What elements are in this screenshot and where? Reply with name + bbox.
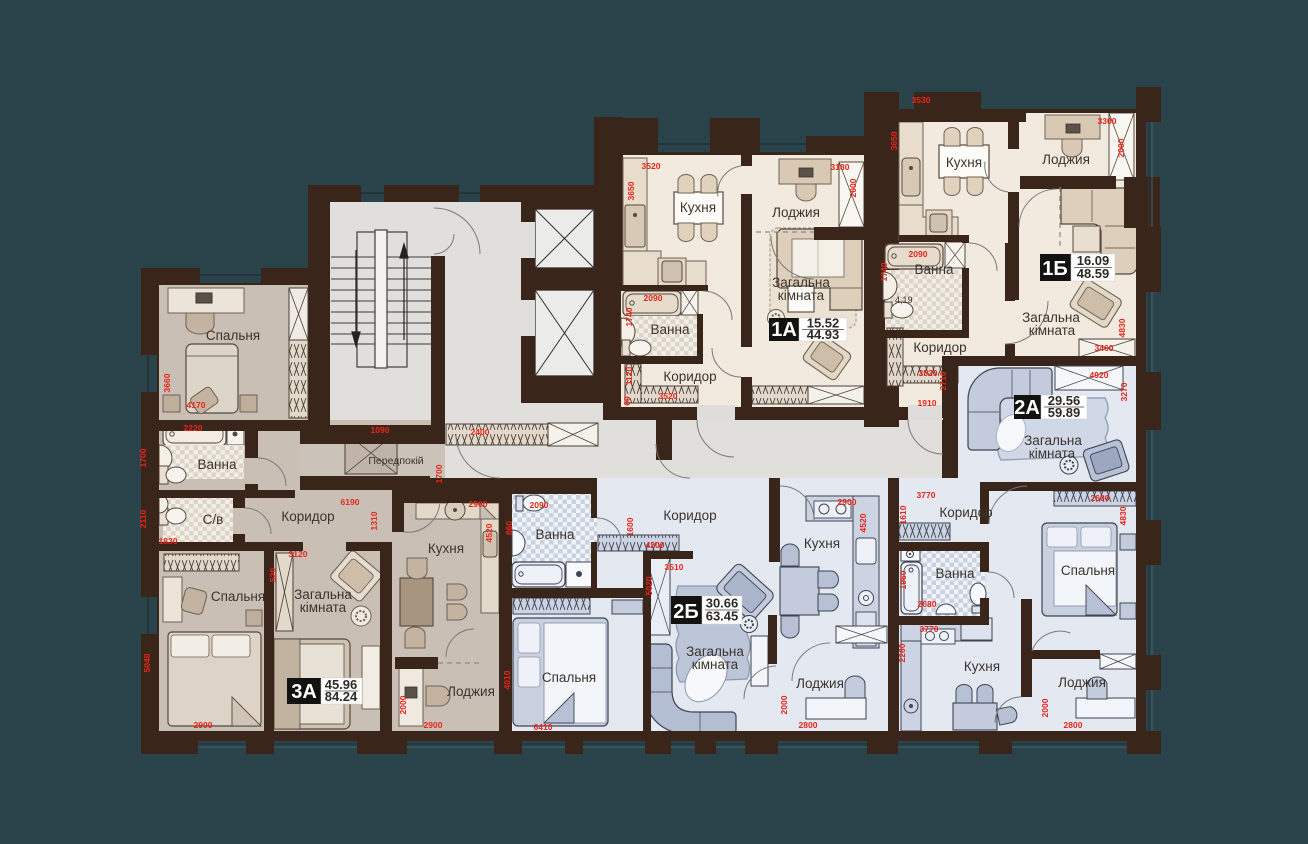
svg-text:3520: 3520: [659, 391, 678, 401]
svg-text:2090: 2090: [909, 249, 928, 259]
svg-text:59.89: 59.89: [1048, 405, 1081, 420]
svg-text:кімната: кімната: [1029, 323, 1076, 338]
svg-text:Кухня: Кухня: [428, 541, 464, 556]
svg-text:44.93: 44.93: [807, 327, 840, 342]
svg-text:4520: 4520: [858, 513, 868, 532]
svg-text:Кухня: Кухня: [804, 536, 840, 551]
svg-text:Лоджия: Лоджия: [796, 676, 844, 691]
svg-text:3270: 3270: [1119, 382, 1129, 401]
svg-text:1740: 1740: [624, 307, 634, 326]
svg-text:Кухня: Кухня: [964, 659, 1000, 674]
svg-text:Коридор: Коридор: [939, 505, 992, 520]
svg-text:2110: 2110: [138, 510, 148, 529]
svg-text:1700: 1700: [434, 464, 444, 483]
svg-text:860: 860: [504, 521, 514, 535]
svg-text:4200: 4200: [646, 540, 665, 550]
svg-text:63.45: 63.45: [706, 609, 739, 624]
svg-text:2900: 2900: [194, 720, 213, 730]
svg-text:60: 60: [622, 396, 632, 406]
svg-text:48.59: 48.59: [1077, 266, 1110, 281]
svg-text:2090: 2090: [530, 500, 549, 510]
svg-text:3300: 3300: [1098, 116, 1117, 126]
svg-text:2600: 2600: [1091, 493, 1110, 503]
svg-text:1700: 1700: [138, 448, 148, 467]
svg-text:2А: 2А: [1014, 397, 1040, 419]
svg-text:3650: 3650: [889, 131, 899, 150]
svg-text:2000: 2000: [1116, 138, 1126, 157]
svg-text:520: 520: [268, 568, 278, 582]
svg-text:2260: 2260: [897, 643, 907, 662]
svg-text:Ванна: Ванна: [651, 322, 690, 337]
svg-text:2000: 2000: [1040, 698, 1050, 717]
svg-text:2680: 2680: [918, 599, 937, 609]
svg-text:Кухня: Кухня: [946, 155, 982, 170]
svg-text:1600: 1600: [625, 517, 635, 536]
svg-text:Лоджия: Лоджия: [772, 205, 820, 220]
svg-text:2000: 2000: [398, 695, 408, 714]
svg-text:4520: 4520: [484, 523, 494, 542]
svg-text:3120: 3120: [289, 549, 308, 559]
svg-text:1740: 1740: [879, 262, 889, 281]
svg-text:1Б: 1Б: [1042, 258, 1068, 280]
svg-text:2400: 2400: [471, 427, 490, 437]
svg-text:1610: 1610: [898, 505, 908, 524]
svg-text:Ванна: Ванна: [536, 527, 575, 542]
svg-text:1120: 1120: [624, 367, 634, 386]
svg-text:3770: 3770: [920, 624, 939, 634]
svg-text:84.24: 84.24: [325, 689, 358, 704]
svg-text:Спальня: Спальня: [1061, 563, 1115, 578]
svg-text:4,19: 4,19: [895, 295, 913, 305]
svg-text:3650: 3650: [626, 181, 636, 200]
svg-text:Коридор: Коридор: [913, 340, 966, 355]
svg-text:5020: 5020: [644, 576, 654, 595]
svg-text:2710: 2710: [938, 371, 948, 390]
svg-text:Спальня: Спальня: [211, 589, 265, 604]
svg-text:кімната: кімната: [300, 600, 347, 615]
svg-text:1910: 1910: [918, 398, 937, 408]
svg-text:3А: 3А: [291, 681, 317, 703]
svg-text:Коридор: Коридор: [663, 508, 716, 523]
svg-text:Спальня: Спальня: [542, 670, 596, 685]
svg-text:2Б: 2Б: [673, 601, 699, 623]
svg-text:2800: 2800: [799, 720, 818, 730]
svg-text:Лоджия: Лоджия: [447, 684, 495, 699]
svg-text:кімната: кімната: [1029, 446, 1076, 461]
svg-text:Лоджия: Лоджия: [1042, 152, 1090, 167]
svg-text:3530: 3530: [912, 95, 931, 105]
svg-text:2900: 2900: [424, 720, 443, 730]
svg-text:Лоджия: Лоджия: [1058, 675, 1106, 690]
svg-text:2900: 2900: [469, 499, 488, 509]
svg-text:1А: 1А: [771, 319, 797, 341]
svg-text:1960: 1960: [898, 570, 908, 589]
svg-text:2220: 2220: [184, 423, 203, 433]
svg-text:3510: 3510: [665, 562, 684, 572]
svg-text:4010: 4010: [502, 670, 512, 689]
svg-text:1090: 1090: [371, 425, 390, 435]
svg-text:Спальня: Спальня: [206, 328, 260, 343]
svg-text:Передпокій: Передпокій: [368, 455, 423, 467]
svg-text:6410: 6410: [534, 722, 553, 732]
svg-text:3770: 3770: [917, 490, 936, 500]
svg-text:5040: 5040: [142, 653, 152, 672]
svg-text:2900: 2900: [838, 497, 857, 507]
svg-text:1830: 1830: [159, 536, 178, 546]
svg-text:2000: 2000: [848, 178, 858, 197]
svg-text:Коридор: Коридор: [281, 509, 334, 524]
svg-text:3520: 3520: [919, 368, 938, 378]
svg-text:1310: 1310: [369, 511, 379, 530]
svg-text:4170: 4170: [187, 400, 206, 410]
svg-text:Кухня: Кухня: [680, 200, 716, 215]
svg-text:4920: 4920: [1090, 370, 1109, 380]
svg-text:3660: 3660: [162, 373, 172, 392]
svg-text:2000: 2000: [779, 695, 789, 714]
svg-text:Ванна: Ванна: [915, 262, 954, 277]
svg-text:2090: 2090: [644, 293, 663, 303]
svg-text:кімната: кімната: [692, 657, 739, 672]
svg-text:3460: 3460: [1095, 343, 1114, 353]
svg-text:С/в: С/в: [203, 512, 224, 527]
svg-text:кімната: кімната: [778, 288, 825, 303]
svg-text:2800: 2800: [1064, 720, 1083, 730]
svg-text:Ванна: Ванна: [936, 566, 975, 581]
svg-text:Коридор: Коридор: [663, 369, 716, 384]
svg-text:3180: 3180: [831, 162, 850, 172]
svg-text:4830: 4830: [1117, 318, 1127, 337]
svg-text:6190: 6190: [341, 497, 360, 507]
svg-text:Ванна: Ванна: [198, 457, 237, 472]
svg-text:3520: 3520: [642, 161, 661, 171]
svg-text:4830: 4830: [1118, 506, 1128, 525]
